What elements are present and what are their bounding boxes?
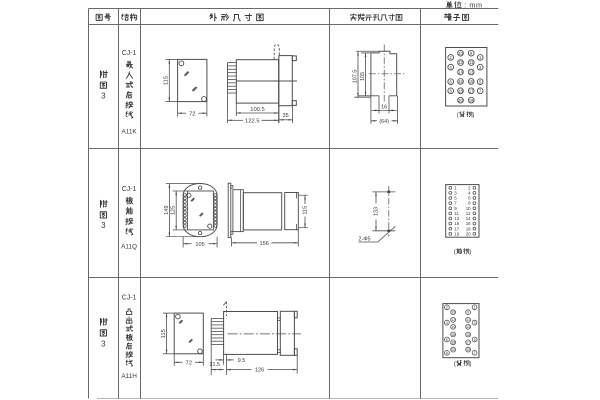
svg-text:19: 19: [454, 231, 459, 236]
svg-text:6: 6: [446, 338, 448, 342]
svg-text:A11Q: A11Q: [121, 244, 137, 251]
svg-text:35: 35: [283, 113, 289, 119]
svg-text:19: 19: [466, 348, 470, 352]
svg-text:1: 1: [474, 306, 476, 310]
svg-text:149: 149: [164, 206, 170, 215]
svg-text:CJ-1: CJ-1: [122, 186, 137, 193]
svg-text:8: 8: [446, 351, 448, 355]
svg-text:156: 156: [260, 241, 269, 247]
svg-text:14: 14: [458, 70, 463, 75]
svg-text:72: 72: [189, 111, 195, 117]
svg-text:126: 126: [255, 368, 264, 374]
svg-text:20: 20: [466, 231, 471, 236]
svg-text:14: 14: [451, 325, 455, 329]
svg-text:17: 17: [466, 341, 470, 345]
svg-text:2-Φ5: 2-Φ5: [358, 237, 370, 243]
svg-text:105: 105: [195, 242, 204, 248]
svg-text:4: 4: [446, 321, 448, 325]
svg-text:20: 20: [458, 98, 463, 103]
svg-text:2: 2: [446, 306, 448, 310]
svg-text:16: 16: [381, 105, 387, 111]
svg-text:(: (: [454, 250, 456, 256]
svg-text:115: 115: [161, 329, 167, 338]
svg-text:18: 18: [451, 341, 455, 345]
svg-text:(: (: [457, 113, 459, 119]
svg-text:100.5: 100.5: [250, 107, 265, 113]
svg-text:3: 3: [101, 221, 106, 230]
svg-text:105: 105: [360, 72, 366, 81]
svg-text:A11H: A11H: [121, 373, 137, 380]
svg-text:): ): [472, 113, 474, 119]
svg-text:72: 72: [185, 360, 191, 366]
svg-text:16: 16: [451, 333, 455, 337]
svg-text:9.5: 9.5: [238, 358, 246, 364]
svg-text:19: 19: [469, 98, 474, 103]
svg-text:13: 13: [469, 70, 474, 75]
svg-text:): ): [469, 250, 471, 256]
svg-text:10: 10: [458, 51, 463, 56]
svg-text:115: 115: [303, 206, 309, 215]
svg-text:16: 16: [458, 79, 463, 84]
svg-text:CJ-1: CJ-1: [122, 295, 137, 302]
svg-text:10: 10: [451, 311, 455, 315]
svg-text:3: 3: [101, 340, 106, 349]
svg-text:15: 15: [469, 79, 474, 84]
svg-text:3: 3: [101, 91, 106, 100]
svg-text:15: 15: [466, 333, 470, 337]
svg-text:12: 12: [451, 318, 455, 322]
svg-text:CJ-1: CJ-1: [122, 50, 137, 57]
svg-text:115: 115: [164, 76, 170, 85]
svg-text:5: 5: [474, 338, 476, 342]
svg-text:9: 9: [467, 311, 469, 315]
svg-text:(64): (64): [379, 119, 389, 125]
svg-text:17: 17: [469, 88, 474, 93]
svg-text:11: 11: [469, 60, 474, 65]
svg-text:107.5: 107.5: [352, 70, 358, 84]
svg-text:31.5: 31.5: [210, 362, 221, 368]
svg-text:A11K: A11K: [122, 129, 138, 136]
svg-text:20: 20: [451, 348, 455, 352]
svg-text:12: 12: [458, 60, 463, 65]
svg-text:7: 7: [474, 351, 476, 355]
svg-text:(: (: [454, 361, 456, 367]
svg-text:133: 133: [374, 207, 380, 216]
svg-text:18: 18: [458, 88, 463, 93]
svg-text:122.5: 122.5: [245, 118, 260, 124]
svg-text:13: 13: [466, 325, 470, 329]
svg-text:): ): [470, 361, 472, 367]
svg-text:125: 125: [171, 206, 177, 215]
svg-text:3: 3: [474, 321, 476, 325]
svg-text:11: 11: [466, 318, 470, 322]
